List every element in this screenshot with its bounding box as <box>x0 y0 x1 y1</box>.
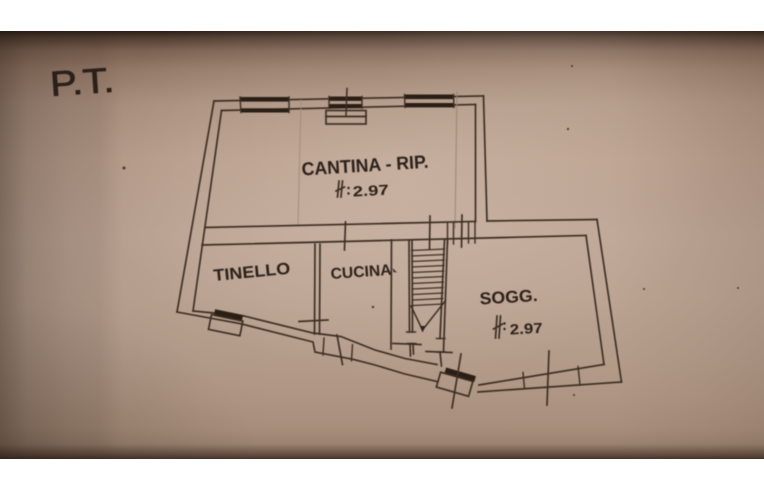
svg-text:P.T.: P.T. <box>49 61 116 104</box>
svg-text:2.97: 2.97 <box>509 321 543 339</box>
svg-text:CANTINA - RIP.: CANTINA - RIP. <box>301 151 429 180</box>
svg-text:TINELLO: TINELLO <box>213 260 292 285</box>
svg-text:2.97: 2.97 <box>352 183 389 201</box>
svg-text:SOGG.: SOGG. <box>479 286 538 309</box>
svg-text:CUCINA: CUCINA <box>330 262 392 283</box>
